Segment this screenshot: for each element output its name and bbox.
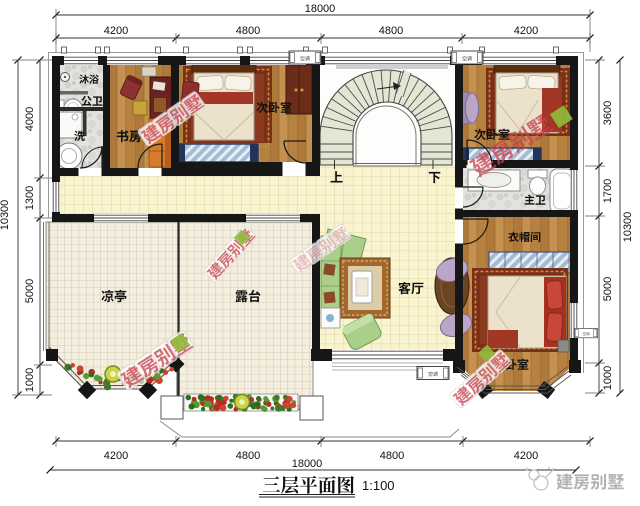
svg-text:1000: 1000: [602, 366, 614, 390]
svg-text:4800: 4800: [379, 25, 403, 37]
svg-text:18000: 18000: [305, 3, 336, 15]
svg-text:5000: 5000: [602, 277, 614, 301]
svg-text:1000: 1000: [24, 368, 36, 392]
svg-text:1300: 1300: [24, 186, 36, 210]
svg-text:10300: 10300: [622, 212, 634, 243]
svg-text:4800: 4800: [236, 25, 260, 37]
svg-text:4200: 4200: [514, 25, 538, 37]
svg-text:4800: 4800: [380, 450, 404, 462]
svg-text:4200: 4200: [514, 450, 538, 462]
svg-text:4200: 4200: [104, 25, 128, 37]
svg-text:18000: 18000: [292, 458, 323, 470]
svg-text:1700: 1700: [602, 179, 614, 203]
svg-text:1:100: 1:100: [362, 478, 395, 493]
svg-text:3600: 3600: [602, 101, 614, 125]
svg-text:5000: 5000: [24, 279, 36, 303]
svg-text:10300: 10300: [0, 200, 11, 231]
svg-text:4200: 4200: [104, 450, 128, 462]
svg-text:4800: 4800: [236, 450, 260, 462]
svg-text:4000: 4000: [24, 107, 36, 131]
